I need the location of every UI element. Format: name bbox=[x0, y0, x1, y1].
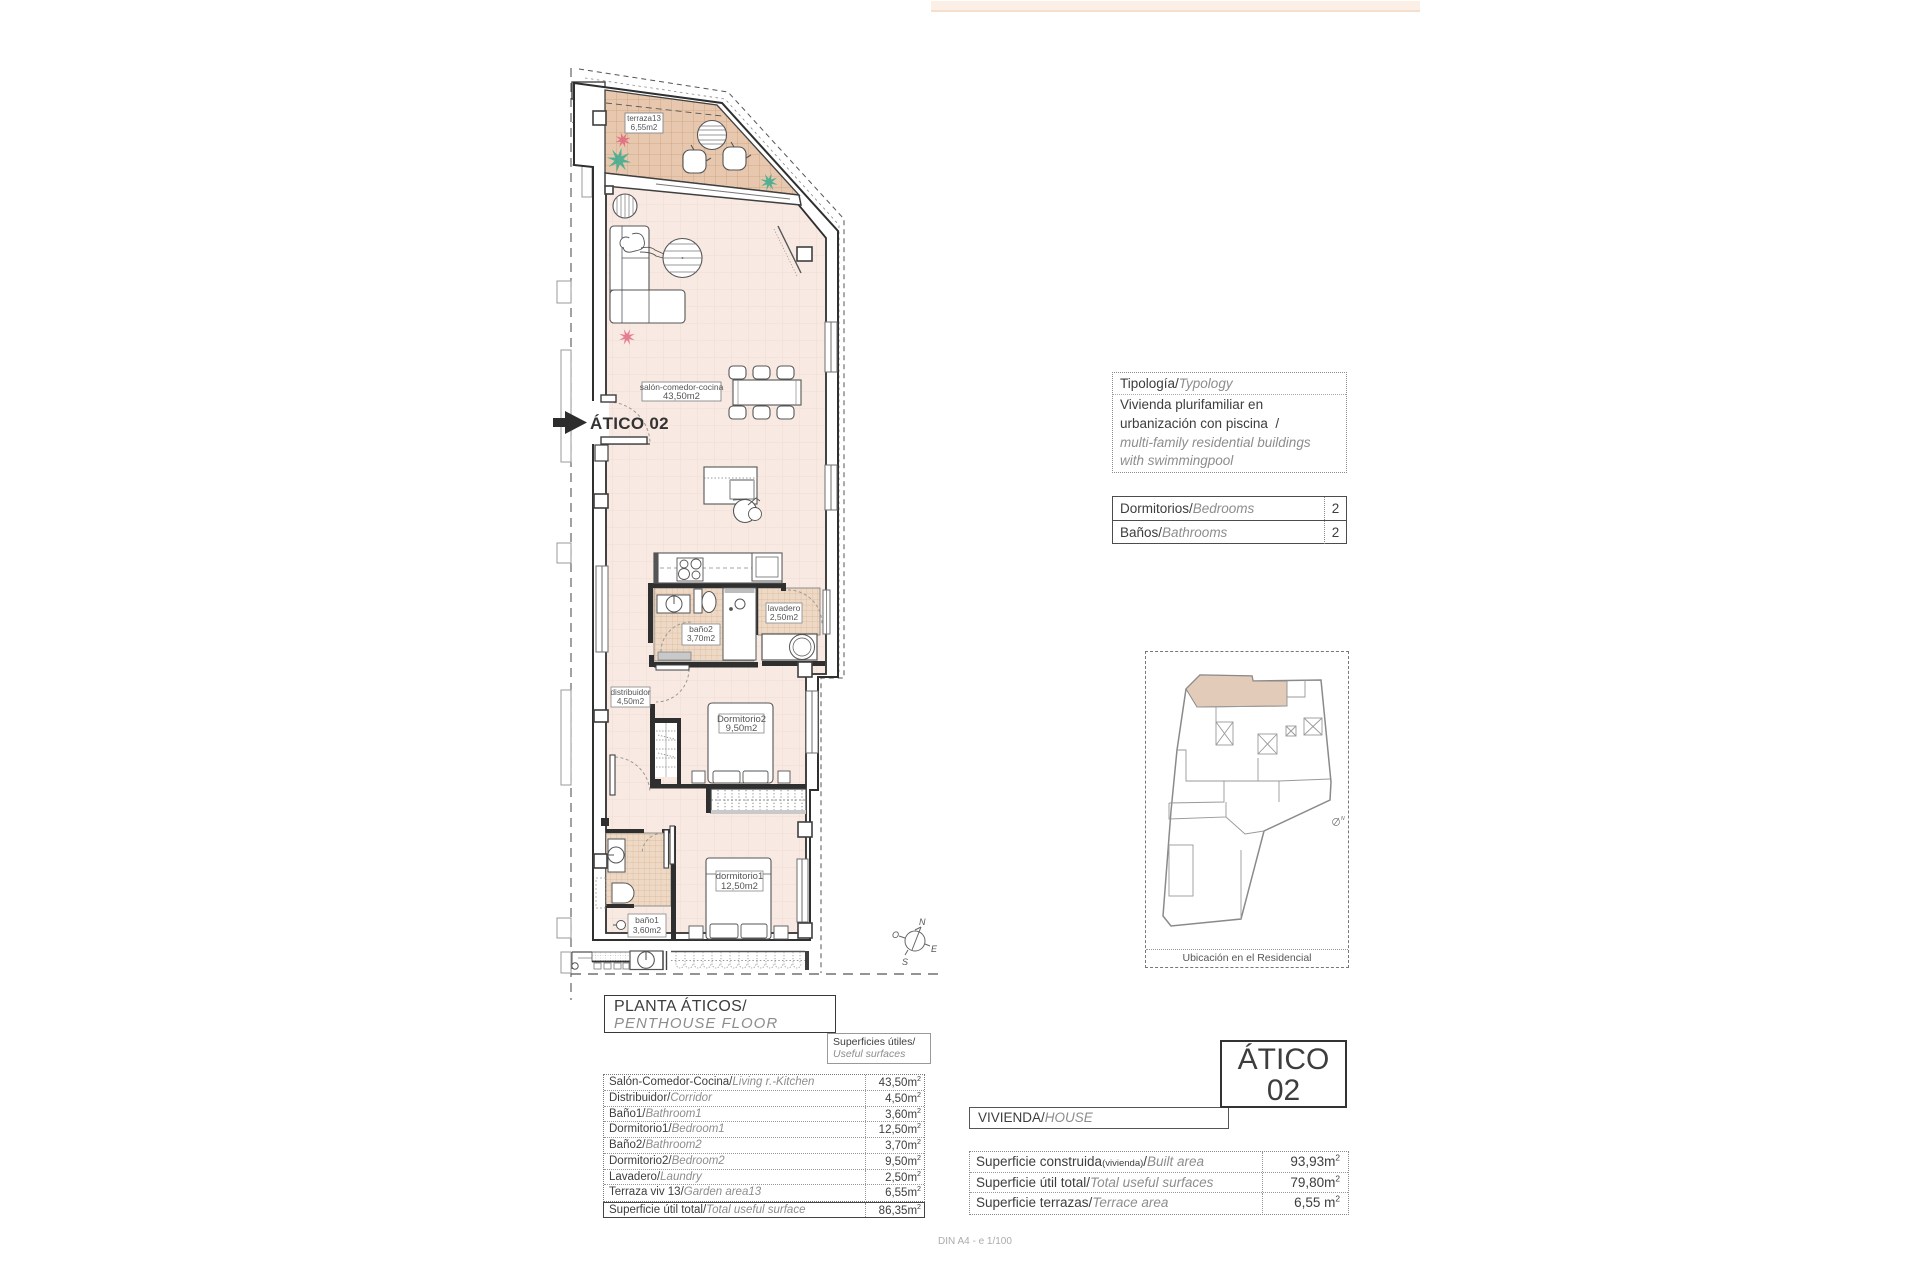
svg-text:6,55m2: 6,55m2 bbox=[631, 123, 658, 132]
svg-text:9,50m2: 9,50m2 bbox=[726, 723, 758, 734]
svg-text:12,50m2: 12,50m2 bbox=[721, 881, 758, 892]
svg-text:3,70m2: 3,70m2 bbox=[687, 633, 716, 643]
svg-text:4,50m2: 4,50m2 bbox=[617, 697, 645, 706]
svg-text:distribuidor: distribuidor bbox=[610, 688, 650, 697]
svg-text:E: E bbox=[931, 944, 938, 954]
svg-text:S: S bbox=[902, 957, 908, 967]
svg-text:2,50m2: 2,50m2 bbox=[770, 612, 799, 622]
svg-text:terraza13: terraza13 bbox=[627, 114, 661, 123]
svg-text:43,50m2: 43,50m2 bbox=[663, 391, 700, 402]
svg-text:ÁTICO 02: ÁTICO 02 bbox=[590, 414, 669, 433]
svg-text:O: O bbox=[892, 930, 899, 940]
svg-text:N: N bbox=[919, 917, 926, 927]
svg-text:3,60m2: 3,60m2 bbox=[633, 925, 662, 935]
svg-text:baño1: baño1 bbox=[635, 915, 659, 925]
